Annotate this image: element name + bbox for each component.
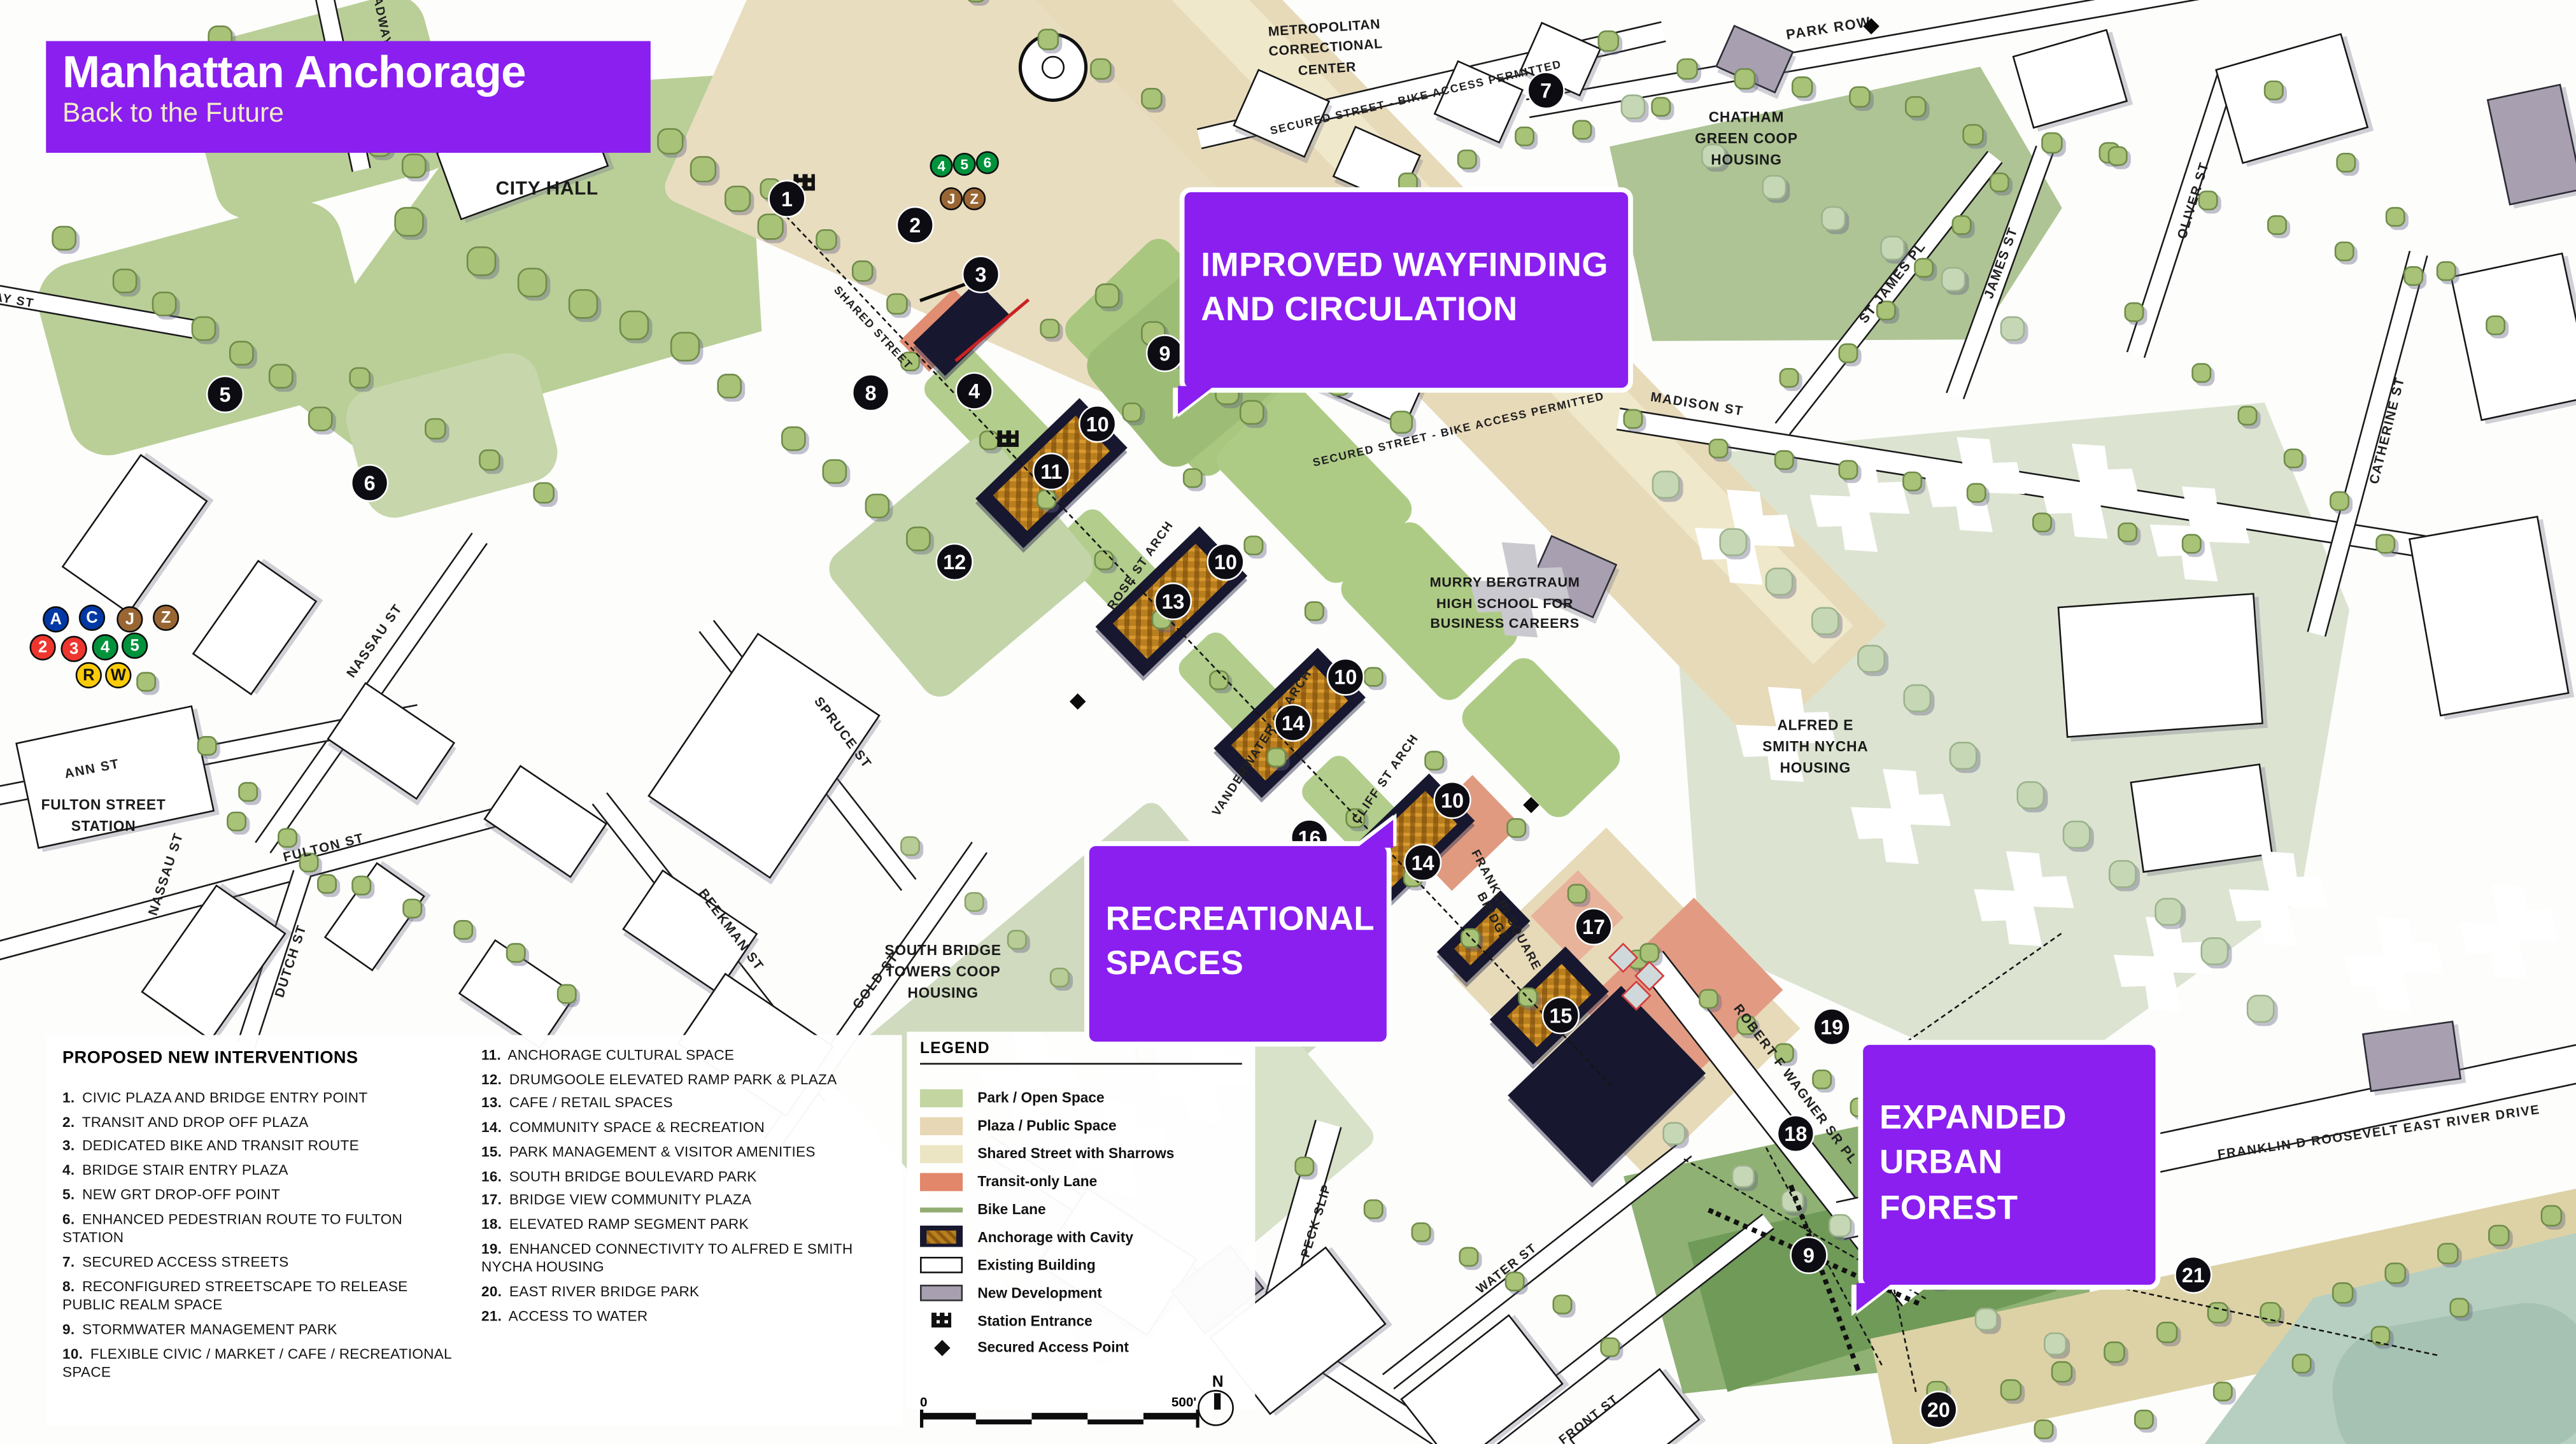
intervention-marker-7: 7: [1527, 71, 1564, 109]
callout-tail: [1178, 386, 1214, 414]
shared-swatch-icon: [920, 1145, 963, 1163]
subway-bullet-6: 6: [976, 151, 999, 174]
intervention-marker-9: 9: [1146, 334, 1184, 372]
subway-bullet-J: J: [940, 187, 963, 210]
legend-item-label: Shared Street with Sharrows: [977, 1145, 1174, 1162]
existing-swatch-icon: [920, 1256, 963, 1273]
callout-recreational-spaces: RECREATIONAL SPACES: [1084, 841, 1392, 1046]
intervention-marker-21: 21: [2174, 1256, 2212, 1294]
intervention-marker-1: 1: [768, 180, 805, 218]
subway-bullet-A: A: [43, 606, 69, 632]
intervention-number: 15.: [481, 1143, 502, 1160]
legend-item: Existing Building: [920, 1251, 1242, 1279]
legend-item: Transit-only Lane: [920, 1168, 1242, 1196]
scale-bar: 0 500': [920, 1398, 1196, 1427]
page-subtitle: Back to the Future: [62, 99, 651, 129]
intervention-number: 13.: [481, 1095, 502, 1112]
intervention-item: 17. BRIDGE VIEW COMMUNITY PLAZA: [481, 1192, 886, 1211]
intervention-number: 9.: [62, 1321, 74, 1338]
callout-text: IMPROVED WAYFINDING AND CIRCULATION: [1201, 246, 1608, 329]
intervention-item: 2. TRANSIT AND DROP OFF PLAZA: [62, 1114, 462, 1133]
intervention-item: 6. ENHANCED PEDESTRIAN ROUTE TO FULTON S…: [62, 1210, 462, 1249]
legend-item-label: Plaza / Public Space: [977, 1118, 1116, 1135]
secured-access-point-icon: [1070, 693, 1086, 710]
intervention-marker-9: 9: [1790, 1236, 1827, 1274]
subway-bullet-4: 4: [92, 634, 118, 660]
intervention-marker-4: 4: [956, 372, 993, 409]
intervention-marker-12: 12: [936, 543, 973, 581]
scale-start-label: 0: [920, 1395, 927, 1410]
intervention-item: 1. CIVIC PLAZA AND BRIDGE ENTRY POINT: [62, 1089, 462, 1108]
pavilion-icon: [1608, 943, 1638, 973]
intervention-marker-14: 14: [1274, 704, 1312, 742]
intervention-marker-10: 10: [1079, 405, 1116, 442]
legend-rows: Park / Open SpacePlaza / Public SpaceSha…: [920, 1084, 1242, 1362]
callout-text: EXPANDED URBAN FOREST: [1879, 1098, 2067, 1227]
place-label: SOUTH BRIDGE TOWERS COOP HOUSING: [884, 940, 1001, 1005]
intervention-item: 7. SECURED ACCESS STREETS: [62, 1254, 462, 1273]
legend-item-label: Secured Access Point: [977, 1340, 1129, 1356]
intervention-number: 11.: [481, 1047, 501, 1063]
plaza-swatch-icon: [920, 1117, 963, 1135]
legend-item-label: Anchorage with Cavity: [977, 1229, 1133, 1245]
intervention-marker-18: 18: [1777, 1115, 1815, 1152]
legend-item: Plaza / Public Space: [920, 1112, 1242, 1140]
intervention-number: 14.: [481, 1119, 502, 1136]
station-entrance-icon: [997, 430, 1019, 447]
legend-item: Bike Lane: [920, 1195, 1242, 1223]
intervention-marker-13: 13: [1154, 583, 1192, 620]
place-label: FULTON STREET STATION: [41, 795, 166, 838]
place-label: MURRY BERGTRAUM HIGH SCHOOL FOR BUSINESS…: [1430, 572, 1580, 634]
legend-item: Station Entrance: [920, 1306, 1242, 1334]
intervention-marker-2: 2: [896, 206, 934, 244]
intervention-number: 18.: [481, 1216, 502, 1233]
legend-item-label: Existing Building: [977, 1256, 1095, 1273]
legend-item-label: New Development: [977, 1284, 1102, 1301]
manhattan-anchorage-map: CITY HALLNYPD HQMETROPOLITAN CORRECTIONA…: [0, 0, 2576, 1444]
scale-and-compass: 0 500' N: [920, 1378, 1242, 1427]
intervention-number: 16.: [481, 1168, 502, 1184]
intervention-marker-3: 3: [962, 255, 1000, 293]
callout-tail: [1857, 1284, 1893, 1312]
place-label: ALFRED E SMITH NYCHA HOUSING: [1762, 715, 1868, 780]
subway-bullet-R: R: [76, 662, 102, 688]
intervention-number: 3.: [62, 1138, 74, 1154]
intervention-item: 13. CAFE / RETAIL SPACES: [481, 1095, 886, 1114]
intervention-marker-15: 15: [1542, 996, 1580, 1034]
legend-item-label: Park / Open Space: [977, 1090, 1104, 1107]
anchorage-swatch-icon: [920, 1226, 963, 1248]
intervention-marker-20: 20: [1920, 1391, 1957, 1428]
intervention-marker-8: 8: [852, 374, 889, 411]
legend-item: New Development: [920, 1278, 1242, 1306]
callout-tail: [1357, 820, 1393, 848]
intervention-item: 4. BRIDGE STAIR ENTRY PLAZA: [62, 1162, 462, 1181]
intervention-number: 4.: [62, 1162, 74, 1179]
intervention-marker-17: 17: [1575, 908, 1612, 945]
page-title: Manhattan Anchorage: [62, 48, 651, 97]
intervention-number: 10.: [62, 1345, 83, 1362]
intervention-item: 16. SOUTH BRIDGE BOULEVARD PARK: [481, 1168, 886, 1187]
legend-item-label: Station Entrance: [977, 1312, 1092, 1329]
intervention-marker-19: 19: [1813, 1008, 1850, 1045]
intervention-number: 21.: [481, 1308, 502, 1324]
north-arrow-icon: N: [1196, 1378, 1238, 1427]
legend-panel: LEGEND Park / Open SpacePlaza / Public S…: [907, 1031, 1255, 1409]
intervention-number: 7.: [62, 1254, 74, 1270]
intervention-number: 1.: [62, 1089, 74, 1106]
intervention-item: 11. ANCHORAGE CULTURAL SPACE: [481, 1047, 886, 1066]
scale-end-label: 500': [1171, 1395, 1196, 1410]
intervention-marker-10: 10: [1207, 543, 1244, 581]
north-label: N: [1196, 1373, 1239, 1391]
legend-item: Anchorage with Cavity: [920, 1223, 1242, 1251]
secured-swatch-icon: [920, 1339, 963, 1357]
subway-bullet-Z: Z: [153, 605, 179, 631]
subway-bullet-C: C: [79, 605, 105, 631]
intervention-number: 20.: [481, 1284, 502, 1300]
intervention-marker-6: 6: [351, 464, 388, 502]
intervention-number: 17.: [481, 1192, 502, 1208]
intervention-marker-14: 14: [1404, 844, 1441, 881]
park-swatch-icon: [920, 1089, 963, 1107]
intervention-item: 15. PARK MANAGEMENT & VISITOR AMENITIES: [481, 1143, 886, 1163]
intervention-marker-10: 10: [1327, 658, 1364, 695]
subway-bullet-Z: Z: [963, 187, 986, 210]
intervention-number: 5.: [62, 1186, 74, 1203]
subway-bullet-W: W: [105, 662, 131, 688]
legend-item: Secured Access Point: [920, 1334, 1242, 1362]
intervention-item: 5. NEW GRT DROP-OFF POINT: [62, 1186, 462, 1205]
intervention-marker-11: 11: [1033, 453, 1070, 490]
station-swatch-icon: [920, 1311, 963, 1329]
subway-bullet-J: J: [117, 606, 143, 632]
place-label: CHATHAM GREEN COOP HOUSING: [1695, 107, 1798, 172]
callout-text: RECREATIONAL SPACES: [1106, 900, 1375, 983]
intervention-item: 21. ACCESS TO WATER: [481, 1308, 886, 1327]
subway-bullet-5: 5: [122, 632, 148, 658]
intervention-marker-5: 5: [206, 376, 244, 413]
legend-item-label: Bike Lane: [977, 1201, 1045, 1217]
intervention-item: 10. FLEXIBLE CIVIC / MARKET / CAFE / REC…: [62, 1345, 462, 1384]
intervention-number: 19.: [481, 1240, 502, 1257]
legend-item: Shared Street with Sharrows: [920, 1140, 1242, 1168]
legend-item-label: Transit-only Lane: [977, 1173, 1097, 1190]
intervention-item: 12. DRUMGOOLE ELEVATED RAMP PARK & PLAZA: [481, 1071, 886, 1090]
place-label: METROPOLITAN CORRECTIONAL CENTER: [1267, 15, 1385, 83]
newdev-swatch-icon: [920, 1284, 963, 1301]
subway-bullet-5: 5: [953, 153, 976, 176]
callout-expanded-urban-forest: EXPANDED URBAN FOREST: [1858, 1040, 2160, 1290]
intervention-item: 14. COMMUNITY SPACE & RECREATION: [481, 1119, 886, 1138]
transit-swatch-icon: [920, 1172, 963, 1190]
interventions-panel: PROPOSED NEW INTERVENTIONS 1. CIVIC PLAZ…: [46, 1035, 902, 1426]
intervention-number: 12.: [481, 1071, 502, 1087]
subway-bullet-2: 2: [29, 634, 55, 660]
intervention-number: 6.: [62, 1210, 74, 1227]
interventions-column-2: 11. ANCHORAGE CULTURAL SPACE12. DRUMGOOL…: [481, 1047, 886, 1389]
intervention-item: 19. ENHANCED CONNECTIVITY TO ALFRED E SM…: [481, 1240, 886, 1278]
subway-bullet-4: 4: [930, 155, 953, 178]
subway-bullet-3: 3: [60, 636, 87, 662]
callout-improved-wayfinding: IMPROVED WAYFINDING AND CIRCULATION: [1180, 187, 1633, 392]
intervention-item: 18. ELEVATED RAMP SEGMENT PARK: [481, 1216, 886, 1235]
interventions-column-1: 1. CIVIC PLAZA AND BRIDGE ENTRY POINT2. …: [62, 1089, 462, 1389]
intervention-item: 9. STORMWATER MANAGEMENT PARK: [62, 1321, 462, 1340]
intervention-item: 8. RECONFIGURED STREETSCAPE TO RELEASE P…: [62, 1278, 462, 1316]
secured-access-point-icon: [1523, 797, 1539, 814]
intervention-item: 3. DEDICATED BIKE AND TRANSIT ROUTE: [62, 1138, 462, 1157]
legend-item: Park / Open Space: [920, 1084, 1242, 1112]
intervention-marker-10: 10: [1433, 781, 1471, 819]
title-box: Manhattan Anchorage Back to the Future: [46, 41, 651, 153]
place-label: CITY HALL: [496, 176, 598, 205]
bike-swatch-icon: [920, 1200, 963, 1218]
intervention-item: 20. EAST RIVER BRIDGE PARK: [481, 1284, 886, 1303]
intervention-number: 8.: [62, 1278, 74, 1294]
intervention-number: 2.: [62, 1114, 74, 1130]
